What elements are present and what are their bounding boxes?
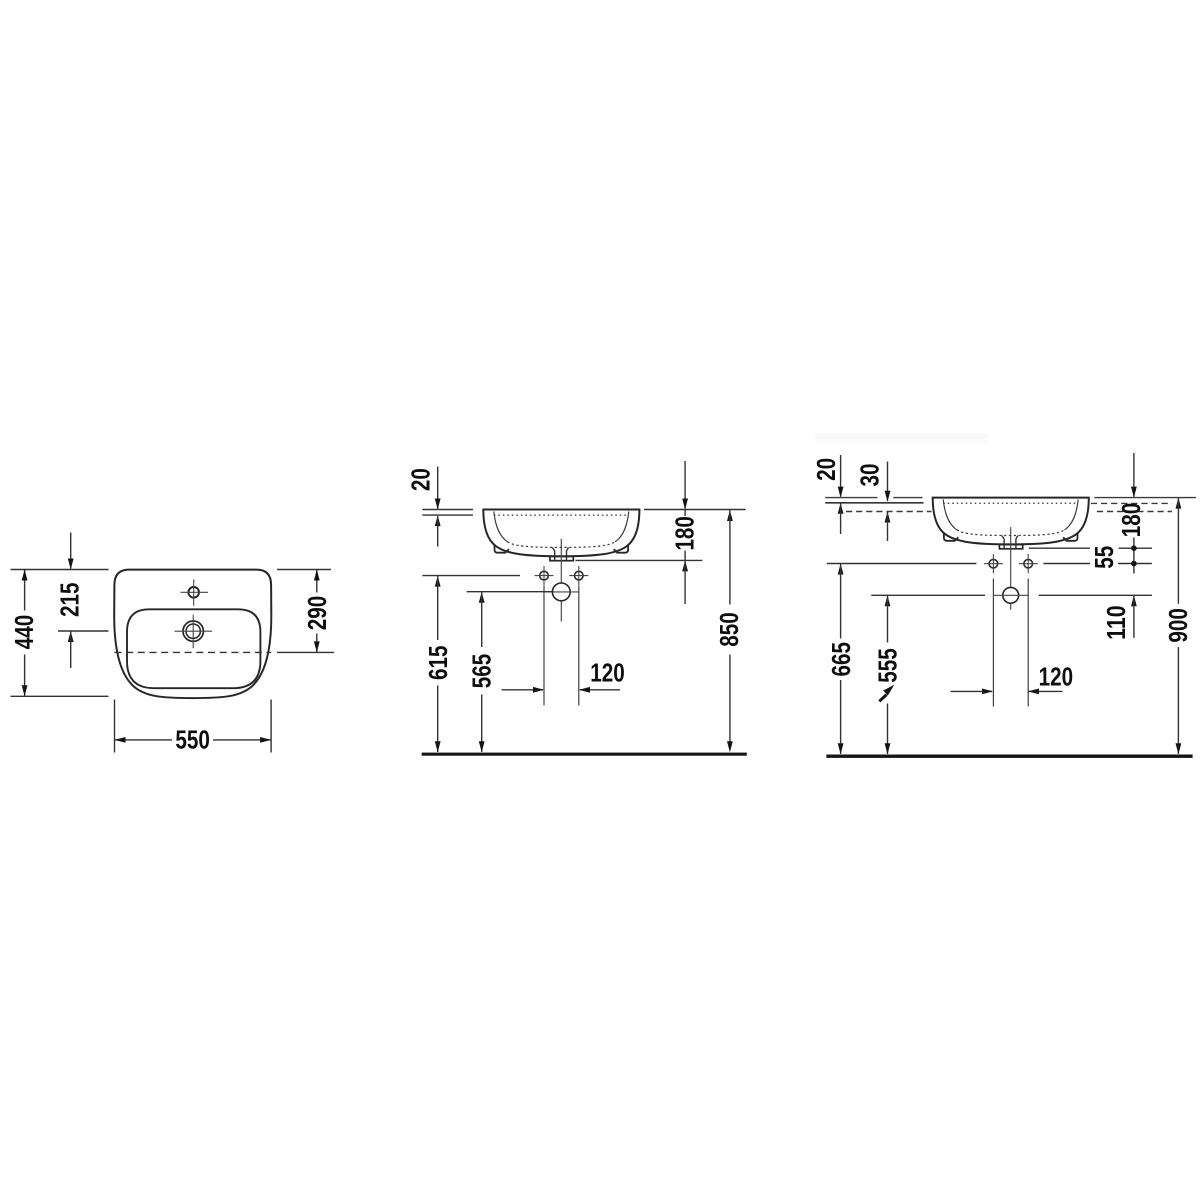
svg-text:440: 440	[9, 615, 39, 650]
svg-text:290: 290	[302, 596, 332, 631]
svg-text:550: 550	[175, 724, 210, 754]
svg-text:565: 565	[467, 654, 497, 689]
svg-text:615: 615	[423, 646, 453, 681]
svg-text:20: 20	[811, 458, 841, 481]
svg-text:120: 120	[1039, 661, 1074, 691]
svg-text:180: 180	[670, 516, 700, 551]
svg-text:30: 30	[855, 464, 885, 487]
svg-text:215: 215	[54, 582, 84, 617]
svg-text:110: 110	[1101, 605, 1131, 640]
svg-text:900: 900	[1163, 608, 1193, 643]
svg-text:20: 20	[406, 468, 436, 491]
svg-text:850: 850	[714, 612, 744, 647]
svg-text:120: 120	[590, 658, 625, 688]
svg-text:555: 555	[872, 648, 902, 683]
svg-text:180: 180	[1116, 503, 1146, 538]
svg-text:665: 665	[826, 642, 856, 677]
svg-text:55: 55	[1089, 546, 1119, 569]
